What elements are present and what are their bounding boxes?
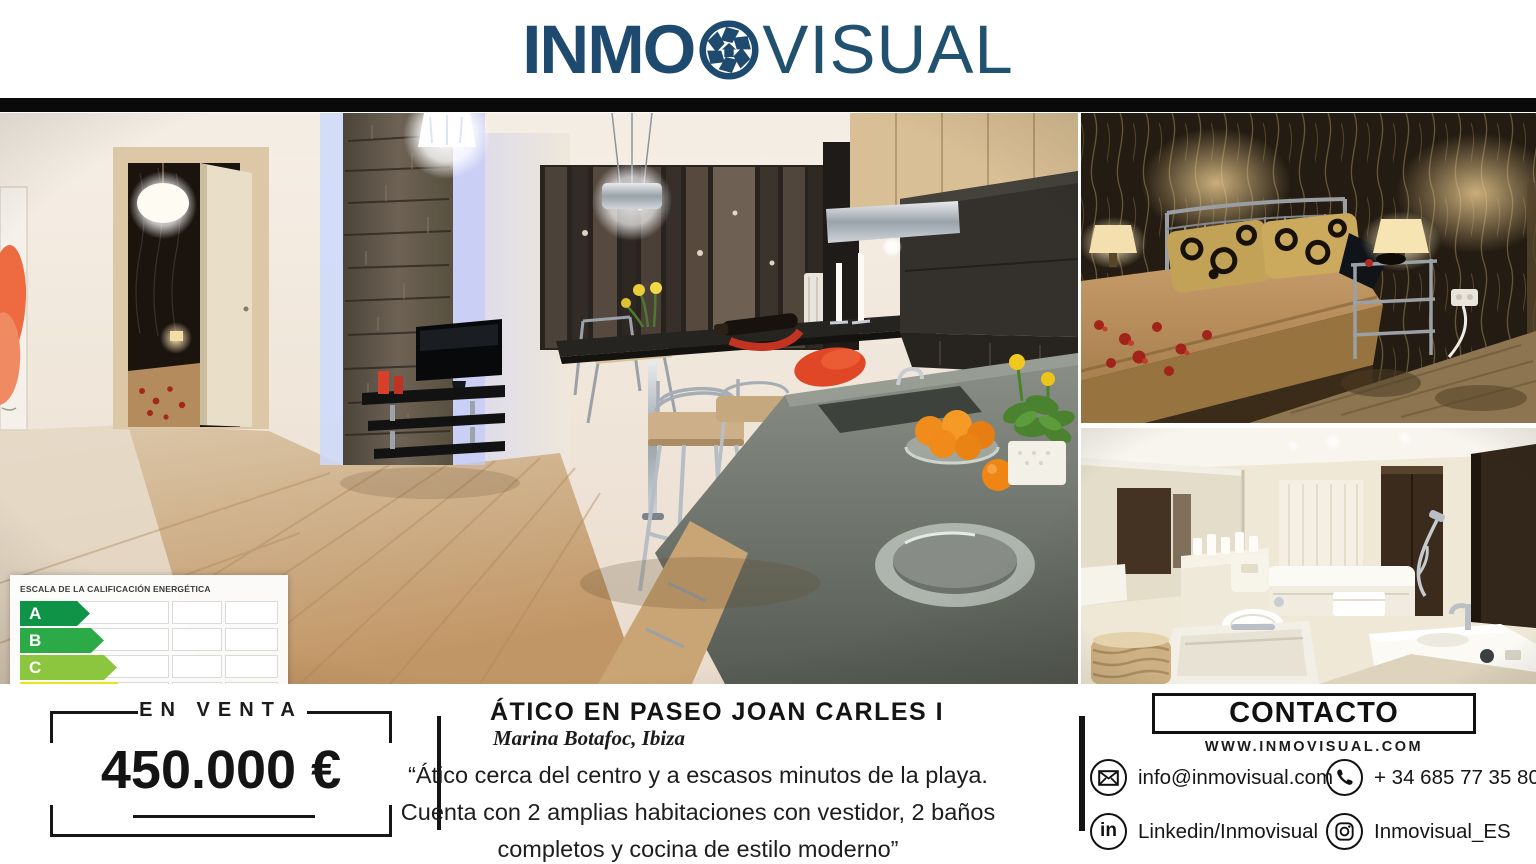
linkedin-icon: in	[1090, 813, 1127, 850]
energy-bar-d: D	[20, 682, 130, 684]
energy-value-cell	[225, 682, 278, 684]
contact-email-label: info@inmovisual.com	[1138, 766, 1333, 790]
contact-instagram-label: Inmovisual_ES	[1374, 820, 1511, 844]
contact-heading-box: CONTACTO	[1152, 693, 1476, 734]
energy-bar-a: A	[20, 601, 90, 626]
energy-value-cell	[225, 601, 278, 624]
listing-location: Marina Botafoc, Ibiza	[493, 726, 685, 751]
energy-value-cell	[172, 682, 222, 684]
footer-divider-right	[1079, 716, 1085, 831]
bathroom-photo	[1081, 428, 1536, 684]
phone-icon	[1326, 759, 1363, 796]
contact-item-phone[interactable]: + 34 685 77 35 80	[1326, 757, 1522, 798]
bedroom-photo	[1081, 113, 1536, 423]
email-icon	[1090, 759, 1127, 796]
listing-description: “Ático cerca del centro y a escasos minu…	[398, 757, 998, 864]
energy-row-a: A	[20, 601, 278, 624]
energy-value-cell	[172, 628, 222, 651]
energy-value-cell	[172, 655, 222, 678]
energy-letter: C	[20, 656, 41, 679]
contact-phone-label: + 34 685 77 35 80	[1374, 766, 1536, 790]
header-logo: INMO VISUAL	[522, 15, 1014, 84]
main-photo-living-room-kitchen: ESCALA DE LA CALIFICACIÓN ENERGÉTICA A B…	[0, 113, 1078, 684]
energy-letter: D	[20, 683, 41, 684]
energy-scale-cell: C	[20, 655, 169, 678]
frame-line	[50, 805, 53, 837]
header-divider-bar	[0, 98, 1536, 112]
real-estate-flyer: INMO VISUAL	[0, 0, 1536, 864]
status-label: EN VENTA	[50, 699, 392, 722]
price-underline	[133, 815, 315, 818]
logo-text-bold: INMO	[522, 15, 694, 84]
energy-row-b: B	[20, 628, 278, 651]
instagram-icon	[1326, 813, 1363, 850]
energy-bar-b: B	[20, 628, 104, 653]
price-frame: EN VENTA 450.000 €	[50, 711, 392, 837]
frame-line	[389, 805, 392, 837]
energy-value-cell	[225, 655, 278, 678]
description-line: completos y cocina de estilo moderno”	[398, 831, 998, 864]
energy-scale-cell: A	[20, 601, 169, 624]
frame-line	[50, 834, 392, 837]
contact-grid: info@inmovisual.com + 34 685 77 35 80 in…	[1090, 757, 1522, 852]
energy-rating-title: ESCALA DE LA CALIFICACIÓN ENERGÉTICA	[20, 584, 278, 594]
energy-letter: A	[20, 602, 41, 625]
contact-item-instagram[interactable]: Inmovisual_ES	[1326, 811, 1522, 852]
energy-bar-c: C	[20, 655, 117, 680]
contact-linkedin-label: Linkedin/Inmovisual	[1138, 820, 1318, 844]
camera-aperture-icon	[699, 20, 759, 80]
energy-row-d: D	[20, 682, 278, 684]
description-line: Cuenta con 2 amplias habitaciones con ve…	[398, 794, 998, 831]
energy-value-cell	[172, 601, 222, 624]
energy-letter: B	[20, 629, 41, 652]
header: INMO VISUAL	[0, 0, 1536, 98]
contact-item-linkedin[interactable]: in Linkedin/Inmovisual	[1090, 811, 1326, 852]
price-value: 450.000 €	[50, 739, 392, 801]
logo-text-light: VISUAL	[762, 15, 1013, 84]
energy-row-c: C	[20, 655, 278, 678]
contact-website-link[interactable]: WWW.INMOVISUAL.COM	[1152, 739, 1476, 755]
description-line: “Ático cerca del centro y a escasos minu…	[398, 757, 998, 794]
energy-value-cell	[225, 628, 278, 651]
energy-rating-panel: ESCALA DE LA CALIFICACIÓN ENERGÉTICA A B…	[10, 575, 288, 684]
contact-item-email[interactable]: info@inmovisual.com	[1090, 757, 1326, 798]
listing-title: ÁTICO EN PASEO JOAN CARLES I	[490, 698, 944, 727]
contact-heading: CONTACTO	[1229, 697, 1399, 730]
energy-scale-cell: B	[20, 628, 169, 651]
energy-scale-cell: D	[20, 682, 169, 684]
